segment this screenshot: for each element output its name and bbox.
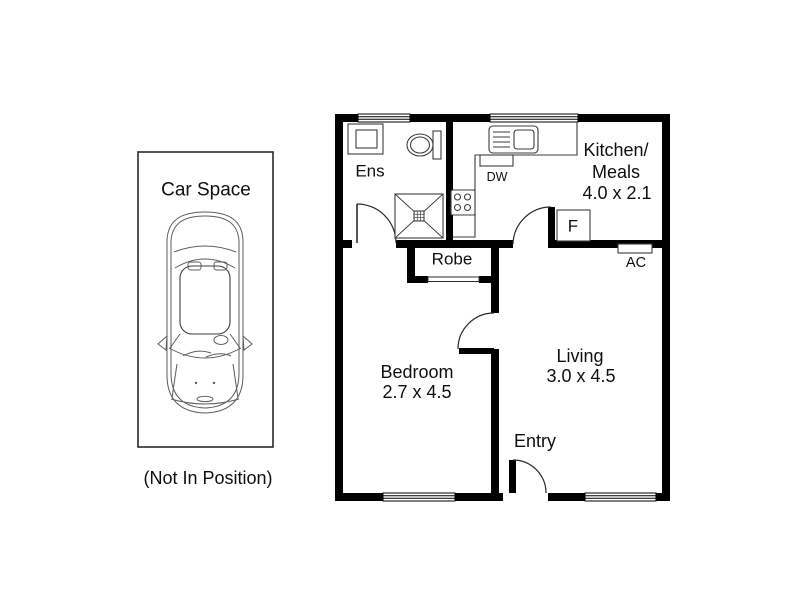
- vanity-basin: [348, 124, 383, 154]
- toilet: [407, 131, 441, 159]
- ensuite-label: Ens: [355, 162, 384, 181]
- robe-lip-left: [407, 276, 428, 283]
- outer-wall-top: [410, 114, 490, 122]
- kitchen-meals-label-line1: Kitchen/: [583, 140, 648, 160]
- window-kitchen: [490, 114, 578, 122]
- door-leaf-entry: [509, 460, 516, 493]
- wall-ens-kitchen: [446, 122, 453, 248]
- outer-wall-bottom: [548, 493, 585, 501]
- door-arc-entry: [513, 460, 546, 493]
- dishwasher-box: [480, 155, 513, 166]
- wall-hall: [396, 240, 513, 248]
- shower: [395, 194, 443, 238]
- outer-wall-right: [662, 114, 670, 501]
- kitchen-sink: [489, 126, 538, 153]
- fridge-label: F: [568, 217, 578, 236]
- window-living: [585, 493, 656, 501]
- car-space-label: Car Space: [161, 180, 251, 201]
- living-dims: 3.0 x 4.5: [546, 366, 615, 386]
- robe-sliding-door: [428, 277, 479, 282]
- door-arc-kitchen: [513, 207, 551, 244]
- ac-unit: [618, 244, 652, 253]
- car-space: Car Space: [138, 152, 273, 488]
- living-label: Living: [556, 346, 603, 366]
- bedroom-dims: 2.7 x 4.5: [382, 382, 451, 402]
- outer-wall-left: [335, 114, 343, 501]
- window-ensuite: [358, 114, 410, 122]
- door-arc-bedroom: [458, 313, 494, 349]
- robe-lip-right: [479, 276, 499, 283]
- kitchen-meals-label-line2: Meals: [592, 162, 640, 182]
- entry-label: Entry: [514, 431, 556, 451]
- room-labels: Ens Kitchen/ Meals 4.0 x 2.1 Robe Bedroo…: [355, 140, 651, 451]
- door-leaf-bedroom: [459, 348, 494, 354]
- door-leaf-kitchen: [548, 207, 555, 244]
- car-top-view-icon: [158, 212, 252, 413]
- not-in-position-label: (Not In Position): [143, 468, 272, 488]
- floor-plan-svg: Car Space: [0, 0, 800, 600]
- wall-hall: [335, 240, 352, 248]
- robe-label: Robe: [432, 250, 473, 269]
- dishwasher-label: DW: [487, 170, 508, 184]
- kitchen-meals-dims: 4.0 x 2.1: [582, 183, 651, 203]
- robe-wall-left: [407, 248, 415, 276]
- window-bedroom: [383, 493, 455, 501]
- ac-label: AC: [626, 255, 646, 271]
- cooktop: [451, 190, 475, 215]
- floor-plan-page: Car Space: [0, 0, 800, 600]
- outer-wall-top: [578, 114, 670, 122]
- door-arc-ensuite: [357, 204, 396, 243]
- wall-bedroom-living: [491, 349, 499, 501]
- bedroom-label: Bedroom: [380, 362, 453, 382]
